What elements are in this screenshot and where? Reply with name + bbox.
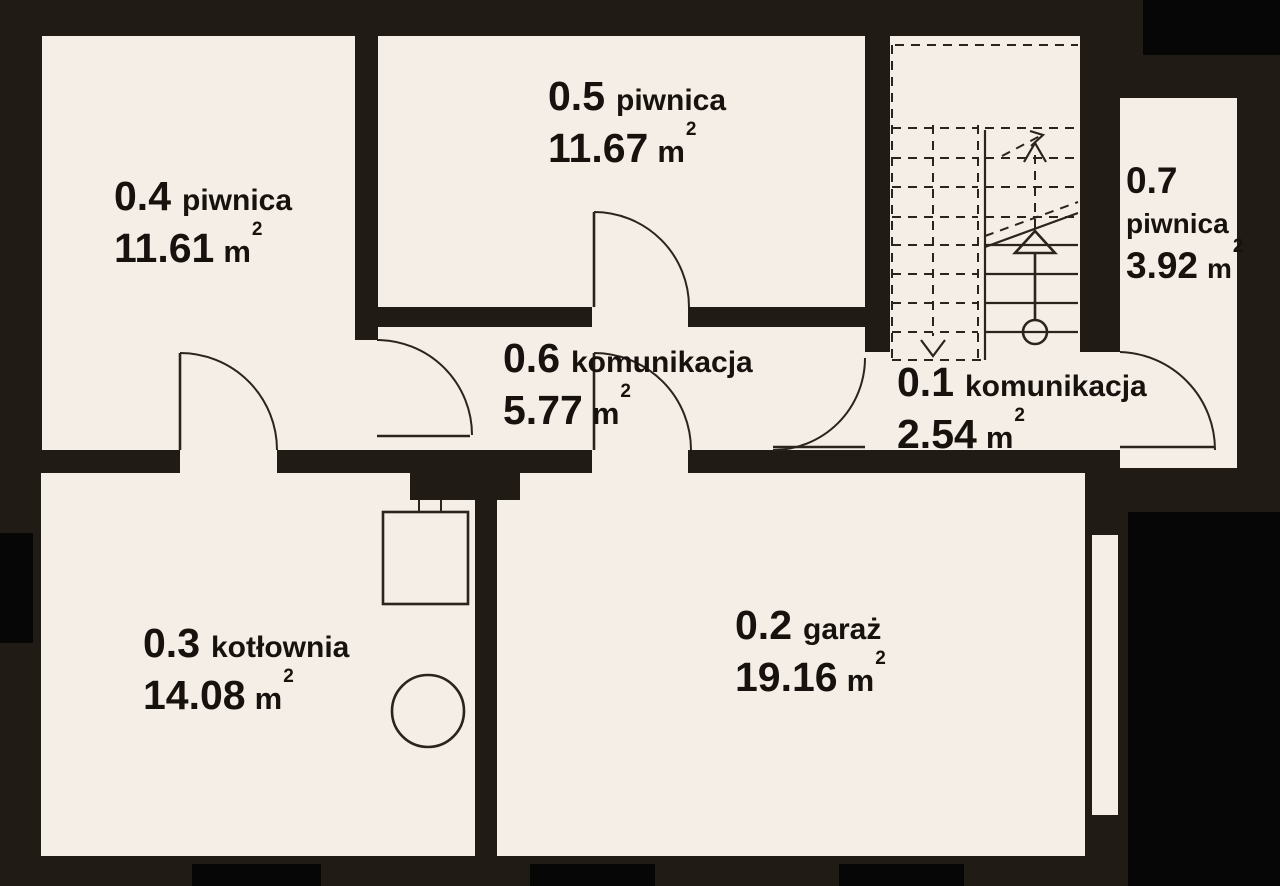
floor-plan: 0.4piwnica 11.61m2 0.5piwnica 11.67m2 0.…: [0, 0, 1280, 886]
room-number: 0.3: [143, 620, 200, 666]
room-area: 14.08: [143, 672, 246, 718]
room-number: 0.1: [897, 359, 954, 405]
opening-bottom-0.2-a: [530, 864, 655, 886]
room-label-0.5: 0.5piwnica 11.67m2: [548, 76, 726, 169]
doorway-0.6-0.2: [592, 450, 688, 473]
room-number: 0.4: [114, 173, 171, 219]
room-area: 11.61: [114, 225, 214, 271]
room-label-0.4: 0.4piwnica 11.61m2: [114, 176, 292, 269]
room-area-unit: m2: [986, 420, 1024, 455]
room-label-0.2: 0.2garaż 19.16m2: [735, 605, 885, 698]
room-area-unit: m2: [592, 396, 630, 431]
room-area-unit: m2: [223, 234, 261, 269]
room-label-0.6: 0.6komunikacja 5.77m2: [503, 338, 753, 431]
crop-area-bottom-right: [1128, 512, 1280, 886]
room-number: 0.6: [503, 335, 560, 381]
room-name: piwnica: [616, 84, 726, 117]
window-left-wall: [0, 533, 33, 643]
room-label-0.7: 0.7 piwnica 3.92m2: [1126, 162, 1243, 284]
opening-bottom-0.2-b: [839, 864, 964, 886]
stairwell-floor: [890, 36, 1080, 352]
room-area-unit: m2: [1207, 253, 1242, 284]
room-number: 0.5: [548, 73, 605, 119]
doorway-0.4-0.6: [355, 340, 378, 450]
room-label-0.1: 0.1komunikacja 2.54m2: [897, 362, 1147, 455]
room-area: 3.92: [1126, 245, 1198, 286]
room-area-unit: m2: [847, 663, 885, 698]
room-area: 11.67: [548, 125, 648, 171]
crop-area-top-right: [1143, 0, 1280, 55]
room-area: 19.16: [735, 654, 838, 700]
room-label-0.3: 0.3kotłownia 14.08m2: [143, 623, 349, 716]
window-bottom-0.3: [192, 864, 321, 886]
room-number: 0.2: [735, 602, 792, 648]
room-name: piwnica: [1126, 208, 1229, 239]
room-number: 0.7: [1126, 160, 1177, 201]
doorway-0.4-0.3: [180, 450, 277, 473]
room-name: piwnica: [182, 184, 292, 217]
garage-wall-recess: [1092, 535, 1118, 815]
room-area: 5.77: [503, 387, 583, 433]
doorway-0.6-0.1: [865, 352, 890, 450]
flue-stub: [410, 473, 520, 500]
room-name: kotłownia: [211, 631, 349, 664]
room-name: komunikacja: [965, 370, 1147, 403]
room-name: komunikacja: [571, 346, 753, 379]
room-area-unit: m2: [657, 134, 695, 169]
doorway-0.5-0.6: [592, 307, 688, 327]
room-area-unit: m2: [255, 681, 293, 716]
room-name: garaż: [803, 613, 881, 646]
room-area: 2.54: [897, 411, 977, 457]
